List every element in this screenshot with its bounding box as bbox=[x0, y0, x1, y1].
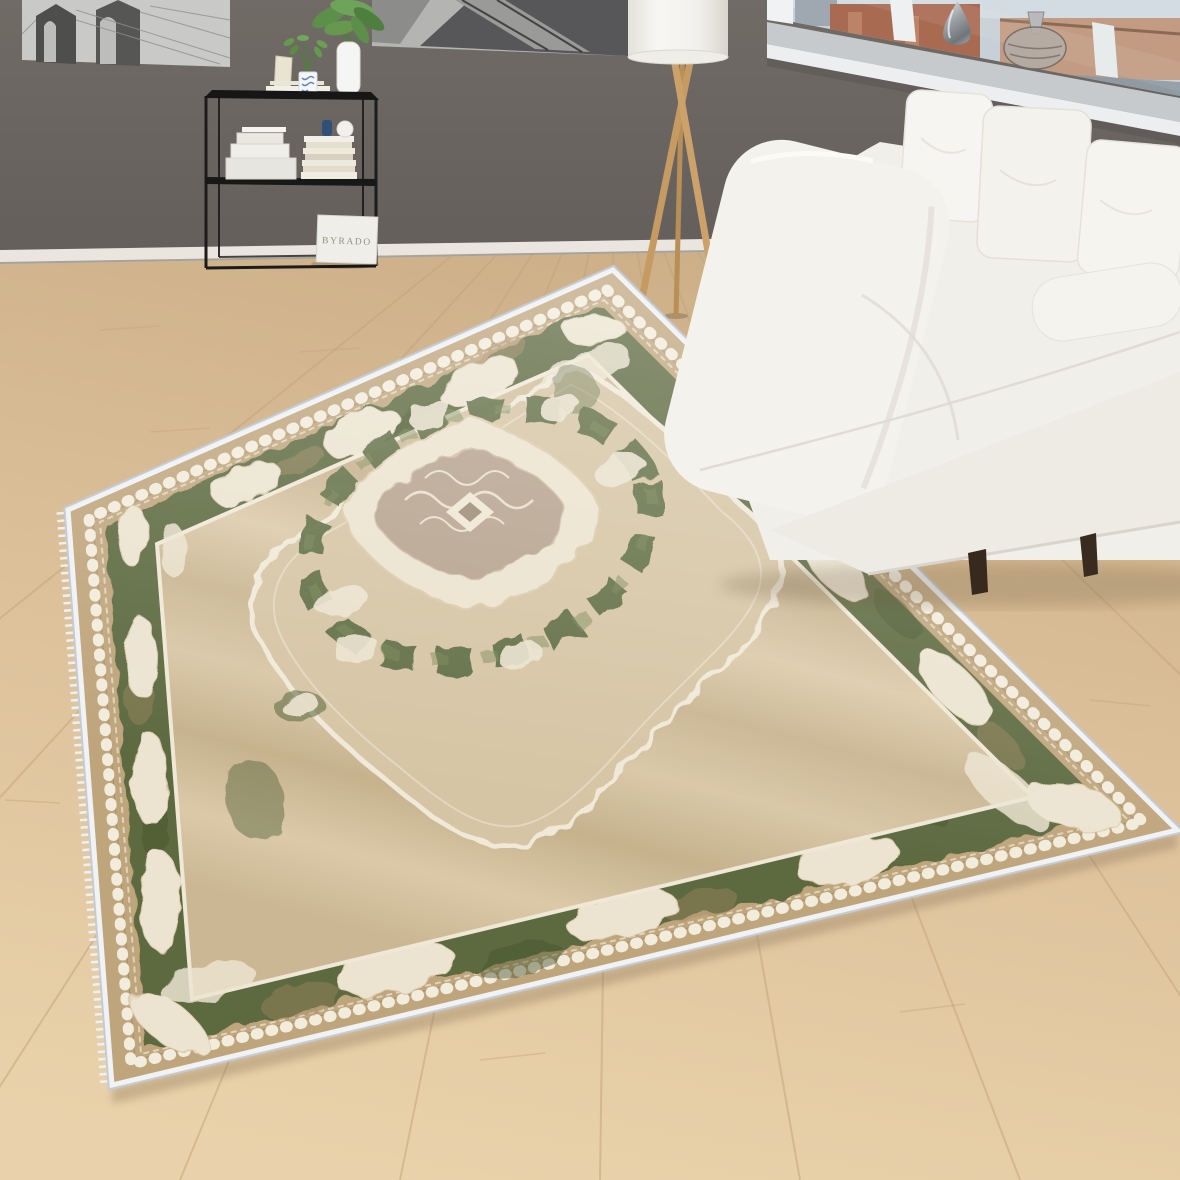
stacked-book bbox=[303, 148, 355, 154]
thin-book bbox=[242, 127, 286, 132]
scene-canvas: BYRADO bbox=[0, 0, 1180, 1180]
storage-box bbox=[237, 133, 283, 144]
window-frame-left bbox=[767, 0, 793, 24]
window-mullion bbox=[890, 0, 916, 42]
picture-bridge bbox=[22, 0, 230, 67]
shelf-book-stack bbox=[301, 136, 357, 179]
tall-white-vase bbox=[337, 42, 360, 94]
window-mullion bbox=[1092, 22, 1118, 78]
storage-box bbox=[231, 144, 289, 158]
stacked-book bbox=[302, 160, 356, 166]
storage-box bbox=[226, 158, 296, 179]
living-room-photo: BYRADO bbox=[0, 0, 1180, 1180]
patterned-pot bbox=[299, 72, 317, 93]
shelf-bag: BYRADO bbox=[316, 215, 378, 264]
sofa-pillow bbox=[976, 105, 1092, 262]
plant-leaf bbox=[297, 35, 309, 41]
lamp-shade bbox=[628, 0, 728, 56]
stacked-book bbox=[303, 166, 355, 172]
shelf-bag-label: BYRADO bbox=[322, 236, 372, 248]
stacked-book bbox=[301, 172, 357, 179]
sofa-pillow bbox=[1076, 139, 1180, 281]
lying-book bbox=[266, 86, 330, 91]
stacked-book bbox=[305, 154, 353, 160]
blue-bottle bbox=[322, 120, 332, 136]
white-sphere bbox=[337, 121, 353, 137]
lamp-shade-rim bbox=[628, 50, 728, 64]
stacked-book bbox=[306, 142, 352, 148]
